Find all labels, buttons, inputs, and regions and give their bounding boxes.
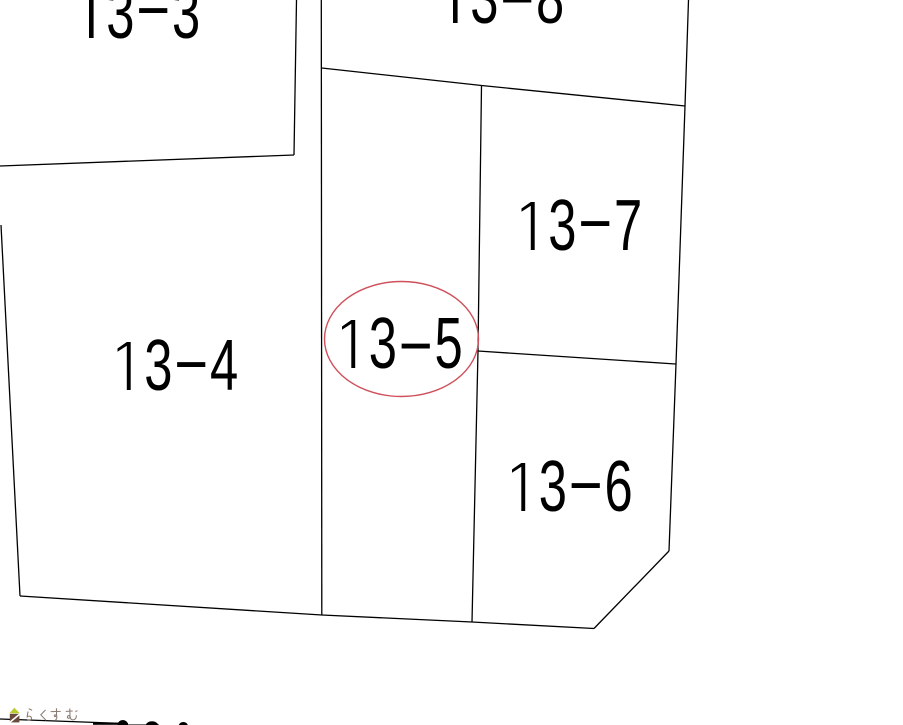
svg-text:3–6: 3–6 (539, 439, 638, 527)
svg-text:3–8: 3–8 (470, 0, 569, 39)
svg-text:3–5: 3–5 (369, 299, 468, 384)
svg-text:3–4: 3–4 (144, 318, 243, 406)
svg-text:3–7: 3–7 (548, 177, 647, 266)
